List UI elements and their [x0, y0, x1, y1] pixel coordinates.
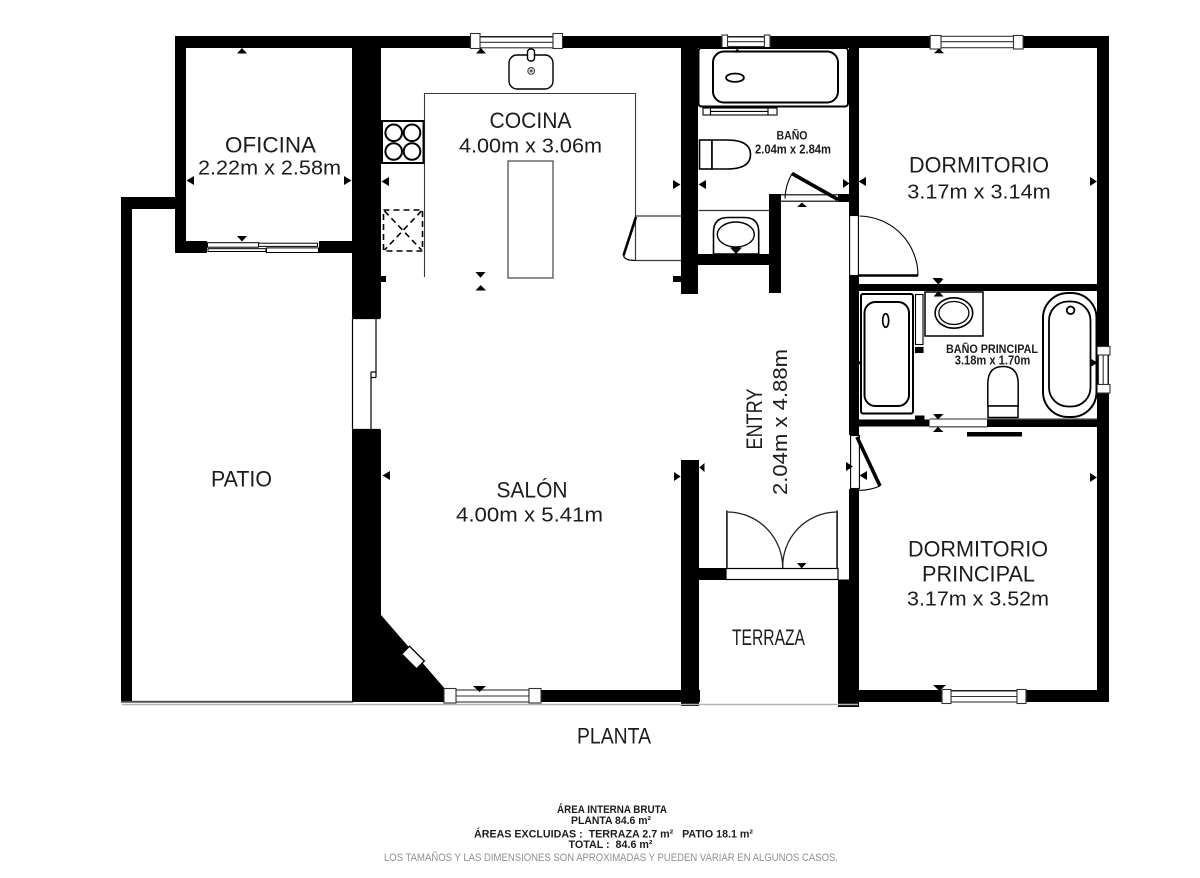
svg-text:OFICINA: OFICINA [225, 133, 316, 158]
svg-text:ENTRY: ENTRY [742, 388, 767, 449]
svg-text:2.04m x 4.88m: 2.04m x 4.88m [770, 349, 792, 495]
svg-text:PATIO: PATIO [211, 467, 272, 492]
svg-text:COCINA: COCINA [490, 108, 572, 133]
svg-text:3.17m x 3.52m: 3.17m x 3.52m [907, 589, 1049, 611]
svg-text:2.04m x 2.84m: 2.04m x 2.84m [755, 143, 831, 157]
svg-text:2.22m x 2.58m: 2.22m x 2.58m [198, 158, 341, 180]
svg-text:SALÓN: SALÓN [497, 478, 568, 503]
svg-text:TOTAL : 84.6 m²: TOTAL : 84.6 m² [569, 839, 653, 851]
svg-text:LOS TAMAÑOS Y LAS DIMENSIONES: LOS TAMAÑOS Y LAS DIMENSIONES SON APROXI… [384, 851, 838, 864]
svg-text:4.00m x 5.41m: 4.00m x 5.41m [456, 505, 603, 527]
svg-text:4.00m x 3.06m: 4.00m x 3.06m [459, 136, 602, 158]
svg-text:3.17m x 3.14m: 3.17m x 3.14m [907, 182, 1051, 204]
svg-text:3.18m x 1.70m: 3.18m x 1.70m [955, 354, 1031, 368]
svg-text:TERRAZA: TERRAZA [732, 625, 805, 650]
svg-text:PLANTA 84.6 m²: PLANTA 84.6 m² [571, 815, 651, 827]
svg-text:PLANTA: PLANTA [577, 724, 651, 749]
svg-text:BAÑO: BAÑO [777, 128, 808, 143]
svg-text:DORMITORIO: DORMITORIO [909, 153, 1049, 178]
svg-text:PRINCIPAL: PRINCIPAL [922, 562, 1035, 587]
svg-text:DORMITORIO: DORMITORIO [908, 537, 1048, 562]
